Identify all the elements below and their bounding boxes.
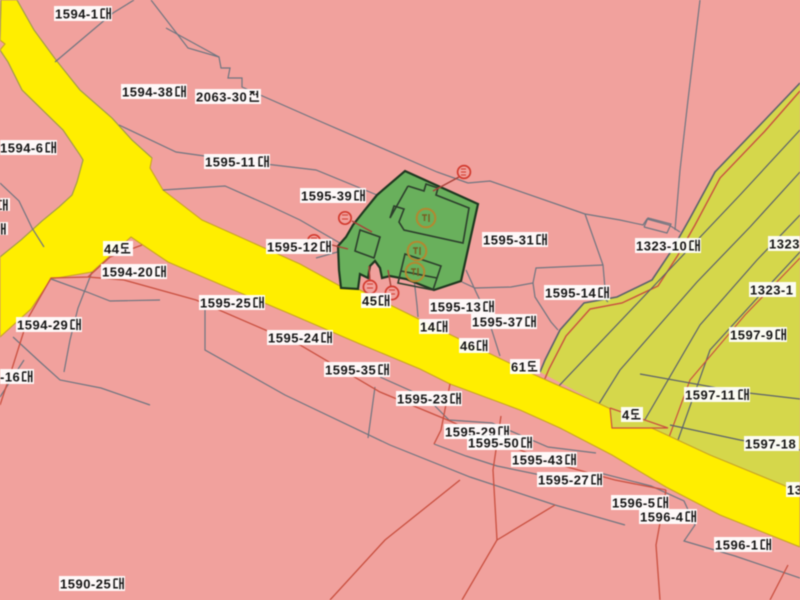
svg-text:61: 61	[511, 360, 526, 375]
svg-text:44: 44	[104, 242, 120, 257]
svg-text:1594-29: 1594-29	[17, 318, 68, 333]
svg-text:1595-12: 1595-12	[267, 240, 318, 255]
svg-text:1595-43: 1595-43	[512, 453, 563, 468]
svg-text:1595-23: 1595-23	[397, 392, 448, 407]
svg-text:1594-6: 1594-6	[0, 141, 43, 156]
svg-text:1323-10: 1323-10	[636, 239, 687, 254]
svg-text:2063-30: 2063-30	[196, 90, 247, 105]
svg-text:46: 46	[460, 339, 475, 354]
svg-text:1595-39: 1595-39	[301, 189, 352, 204]
svg-text:1597-18: 1597-18	[745, 437, 796, 452]
svg-text:1595-27: 1595-27	[538, 473, 589, 488]
svg-text:1595-37: 1595-37	[472, 315, 523, 330]
svg-text:14: 14	[420, 320, 436, 335]
svg-text:1597-11: 1597-11	[685, 388, 736, 403]
svg-text:1597-9: 1597-9	[730, 328, 773, 343]
svg-text:1595-14: 1595-14	[545, 286, 596, 301]
svg-text:1594-20: 1594-20	[102, 265, 153, 280]
svg-text:1596-1: 1596-1	[715, 538, 758, 553]
svg-text:1595-25: 1595-25	[200, 296, 251, 311]
svg-text:1595-31: 1595-31	[483, 233, 534, 248]
svg-text:1595-35: 1595-35	[325, 363, 376, 378]
svg-text:1596-5: 1596-5	[612, 496, 655, 511]
svg-text:1595-24: 1595-24	[268, 331, 319, 346]
svg-text:1594-1: 1594-1	[55, 7, 98, 22]
svg-text:1594-38: 1594-38	[122, 85, 173, 100]
svg-text:13: 13	[787, 483, 800, 498]
svg-text:1595-50: 1595-50	[468, 436, 519, 451]
svg-text:1323: 1323	[769, 237, 800, 252]
svg-text:1596-4: 1596-4	[640, 510, 684, 525]
svg-text:1590-25: 1590-25	[60, 577, 111, 592]
svg-text:1595-11: 1595-11	[205, 155, 256, 170]
svg-text:1595-13: 1595-13	[430, 300, 481, 315]
svg-text:1323-1: 1323-1	[750, 283, 793, 298]
svg-text:45: 45	[362, 294, 377, 309]
svg-text:4: 4	[622, 408, 630, 423]
svg-text:-16: -16	[0, 370, 20, 385]
